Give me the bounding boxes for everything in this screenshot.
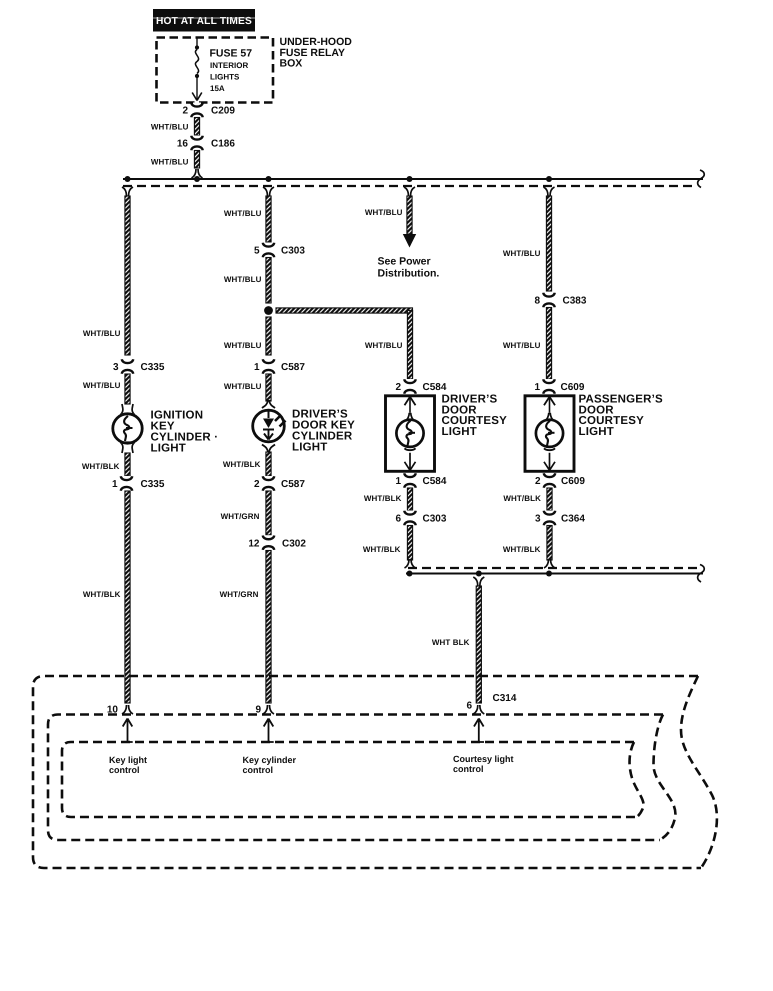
svg-text:WHT/BLK: WHT/BLK [83,590,121,599]
svg-text:WHT/BLU: WHT/BLU [83,381,121,390]
svg-text:WHT/BLU: WHT/BLU [224,382,262,391]
svg-text:3: 3 [113,362,119,373]
svg-text:LIGHT: LIGHT [292,442,328,454]
svg-text:2: 2 [254,479,260,490]
svg-text:BOX: BOX [280,58,303,70]
svg-text:WHT/BLK: WHT/BLK [82,462,120,471]
svg-text:control: control [109,765,140,775]
svg-text:WHT/BLK: WHT/BLK [363,545,401,554]
svg-text:1: 1 [395,476,401,487]
svg-text:2: 2 [395,382,401,393]
svg-text:C186: C186 [211,139,235,150]
svg-text:C609: C609 [561,476,585,487]
svg-text:2: 2 [535,476,541,487]
svg-text:WHT BLK: WHT BLK [432,638,470,647]
svg-text:6: 6 [395,514,401,525]
svg-text:1: 1 [534,382,540,393]
svg-text:C364: C364 [561,514,585,525]
svg-text:16: 16 [177,139,189,150]
svg-text:WHT/BLU: WHT/BLU [224,275,262,284]
svg-text:See Power: See Power [378,256,431,268]
svg-text:WHT/BLU: WHT/BLU [365,208,403,217]
svg-text:6: 6 [466,701,472,712]
svg-text:WHT/BLU: WHT/BLU [365,341,403,350]
svg-text:WHT/BLU: WHT/BLU [224,209,262,218]
svg-text:C302: C302 [282,538,306,549]
svg-text:WHT/BLU: WHT/BLU [151,123,189,132]
svg-text:C335: C335 [141,479,165,490]
svg-text:WHT/GRN: WHT/GRN [221,512,260,521]
svg-text:WHT/BLK: WHT/BLK [364,494,402,503]
svg-text:C584: C584 [423,382,447,393]
svg-text:WHT/BLU: WHT/BLU [83,329,121,338]
svg-text:LIGHT: LIGHT [442,426,478,438]
svg-text:3: 3 [535,514,541,525]
svg-text:LIGHT: LIGHT [579,426,615,438]
svg-text:C314: C314 [493,693,517,704]
svg-text:WHT/BLK: WHT/BLK [503,545,541,554]
svg-text:control: control [453,764,484,774]
svg-text:WHT/GRN: WHT/GRN [220,590,259,599]
svg-text:15A: 15A [210,84,225,93]
svg-text:C609: C609 [561,382,585,393]
svg-text:C587: C587 [281,362,305,373]
svg-text:C584: C584 [423,476,447,487]
svg-text:1: 1 [112,479,118,490]
svg-text:Courtesy light: Courtesy light [453,754,514,764]
svg-text:LIGHTS: LIGHTS [210,73,240,82]
svg-text:2: 2 [182,106,188,117]
svg-text:FUSE 57: FUSE 57 [210,48,253,60]
svg-text:Key light: Key light [109,755,147,765]
svg-text:1: 1 [254,362,260,373]
svg-text:WHT/BLK: WHT/BLK [503,494,541,503]
svg-text:8: 8 [534,296,540,307]
svg-text:WHT/BLU: WHT/BLU [151,158,189,167]
svg-text:Distribution.: Distribution. [378,268,440,280]
svg-text:C587: C587 [281,479,305,490]
svg-text:C383: C383 [563,296,587,307]
svg-text:5: 5 [254,246,260,257]
svg-text:WHT/BLU: WHT/BLU [224,341,262,350]
svg-text:C335: C335 [141,362,165,373]
svg-text:WHT/BLK: WHT/BLK [223,460,261,469]
svg-text:Key cylinder: Key cylinder [243,755,297,765]
svg-text:C303: C303 [423,514,447,525]
svg-text:WHT/BLU: WHT/BLU [503,341,541,350]
svg-text:WHT/BLU: WHT/BLU [503,249,541,258]
svg-text:INTERIOR: INTERIOR [210,61,248,70]
svg-text:C303: C303 [281,246,305,257]
svg-text:LIGHT: LIGHT [151,443,187,455]
svg-text:C209: C209 [211,106,235,117]
svg-text:12: 12 [248,538,260,549]
svg-text:control: control [243,765,274,775]
